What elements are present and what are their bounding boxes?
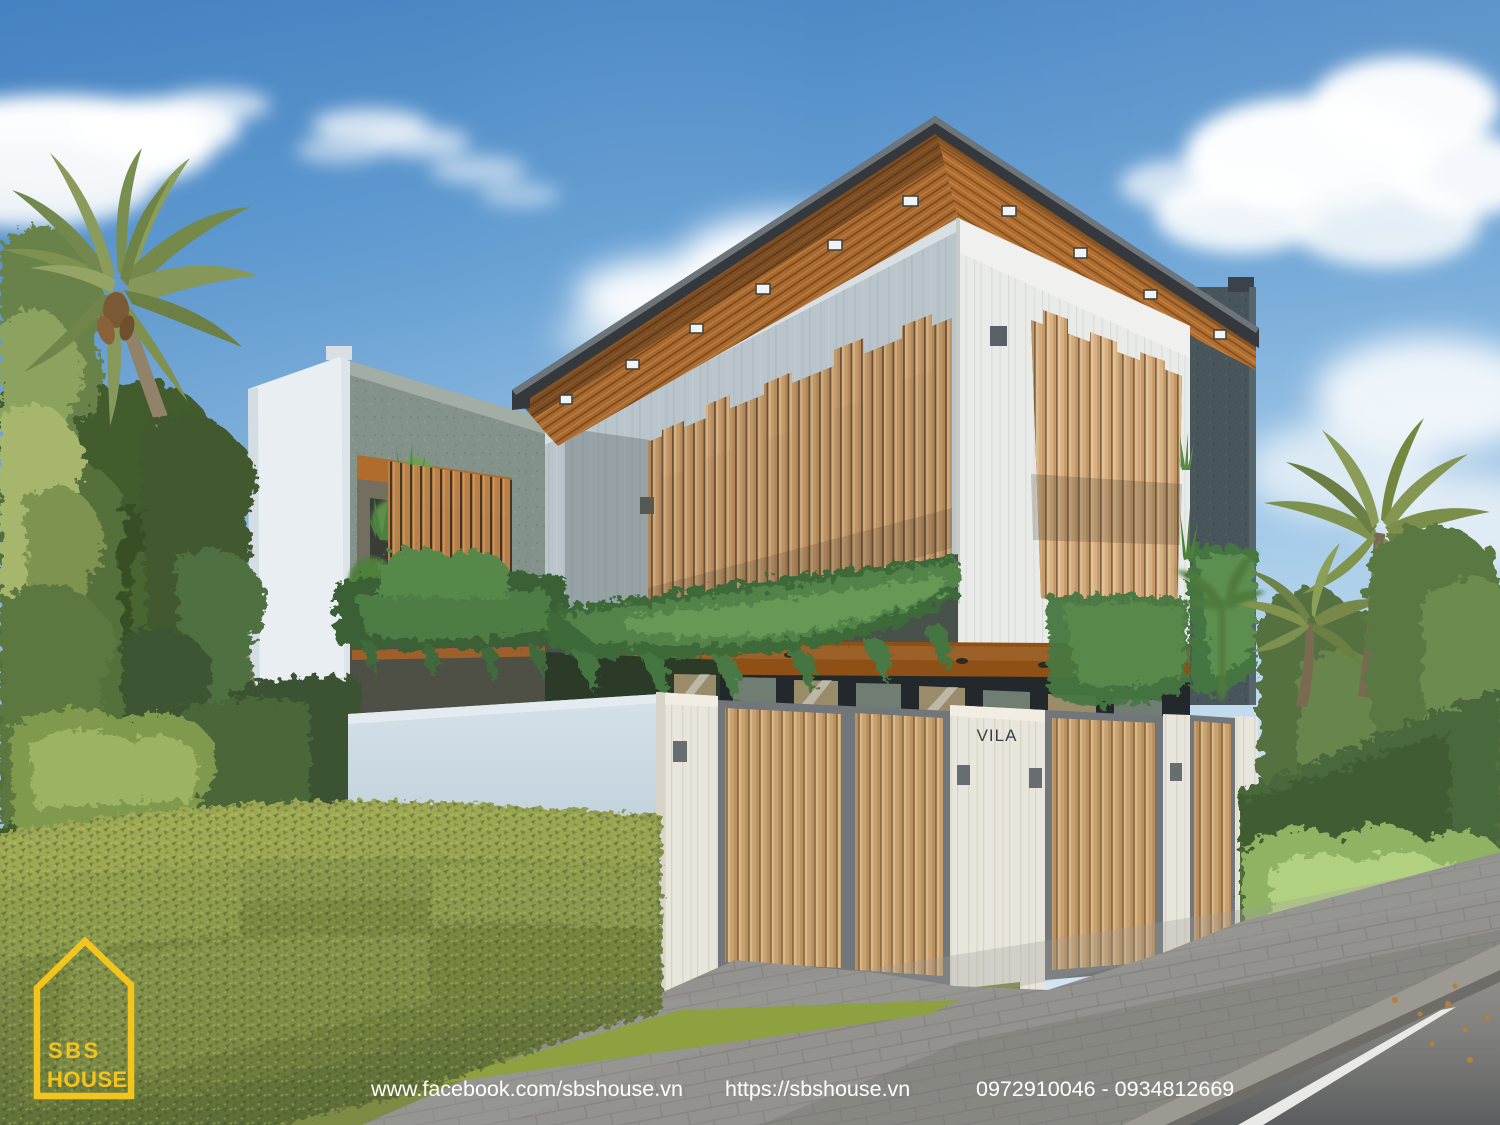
svg-text:https://sbshouse.vn: https://sbshouse.vn — [725, 1077, 910, 1101]
svg-text:SBS: SBS — [48, 1038, 101, 1063]
svg-text:www.facebook.com/sbshouse.vn: www.facebook.com/sbshouse.vn — [370, 1077, 683, 1101]
svg-text:VILA: VILA — [977, 726, 1018, 745]
svg-text:HOUSE: HOUSE — [47, 1067, 128, 1092]
svg-text:0972910046 - 0934812669: 0972910046 - 0934812669 — [976, 1077, 1234, 1101]
